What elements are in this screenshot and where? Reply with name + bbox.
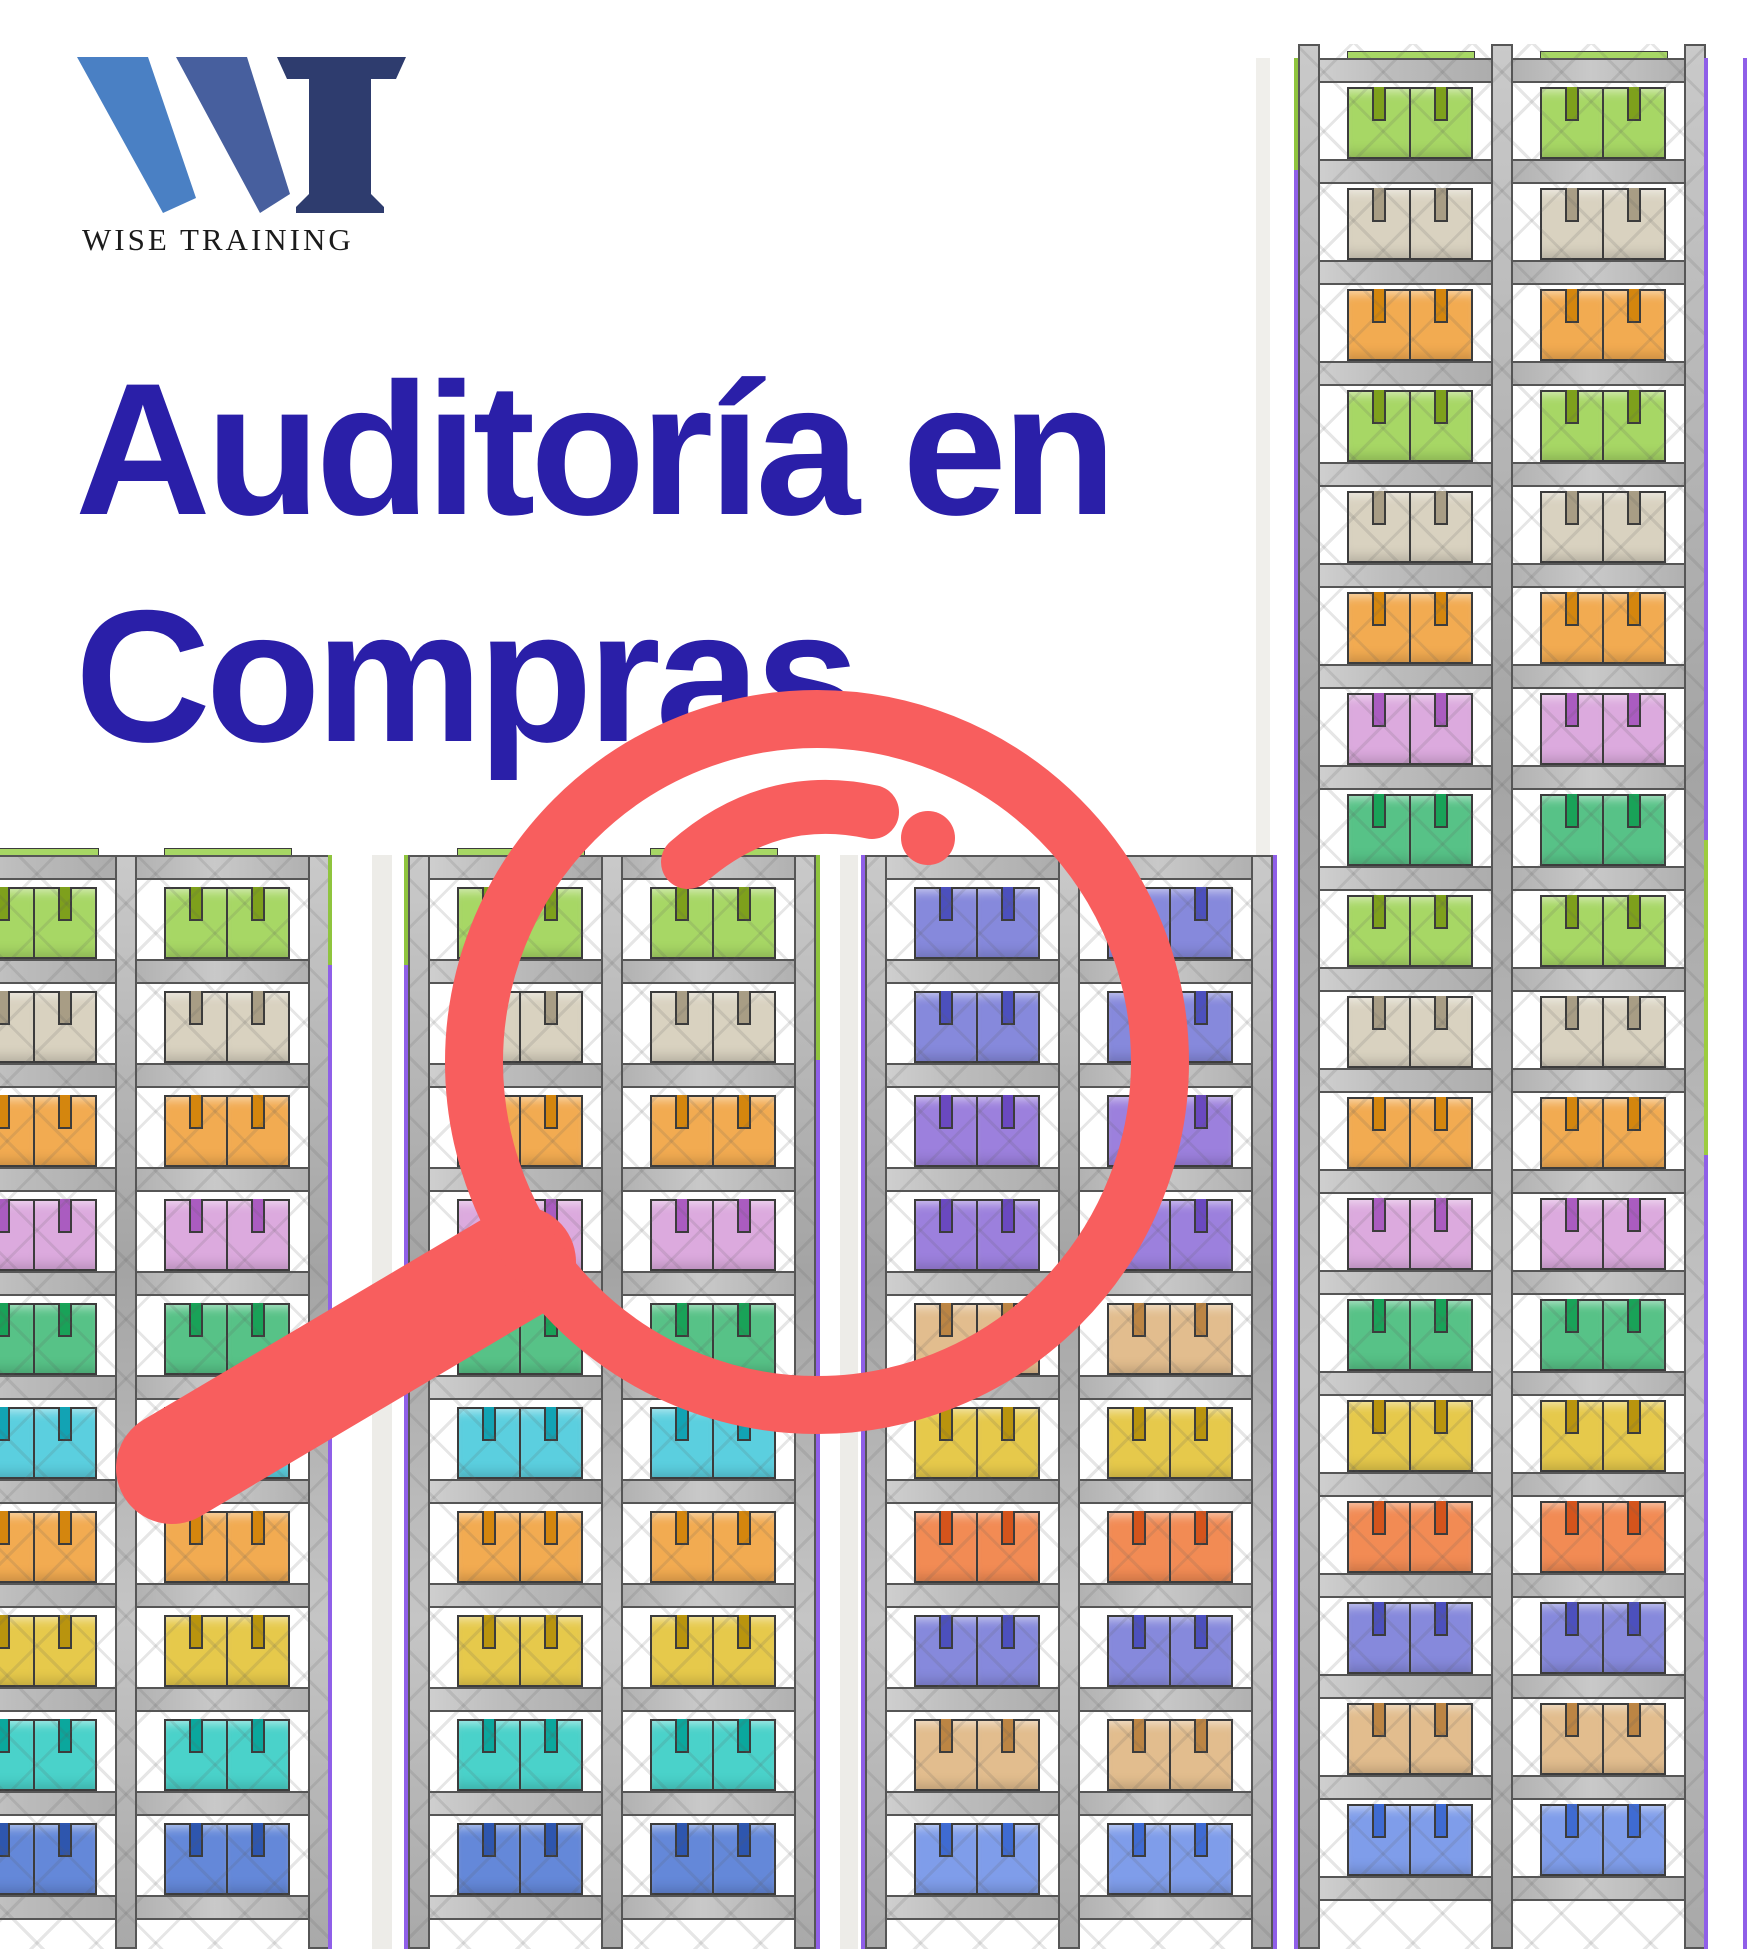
storage-box (1347, 188, 1411, 260)
storage-box (1107, 1303, 1171, 1375)
box-tape-strap (189, 1199, 203, 1233)
box-tape-strap (1372, 491, 1386, 525)
box-tape-strap (675, 1407, 689, 1441)
storage-box (712, 1511, 776, 1583)
storage-box (1602, 1804, 1666, 1876)
box-tape-strap (1372, 592, 1386, 626)
box-tape-strap (482, 1719, 496, 1753)
box-tape-strap (482, 1615, 496, 1649)
box-pair (650, 1719, 776, 1791)
box-tape-strap (58, 1719, 72, 1753)
background-stripe (372, 855, 392, 1949)
box-pair (1347, 1198, 1473, 1270)
box-pair (650, 887, 776, 959)
storage-box (1540, 693, 1604, 765)
rack-edge-line (404, 855, 408, 965)
box-tape-strap (1627, 390, 1641, 424)
storage-box (976, 1719, 1040, 1791)
box-tape-strap (1434, 188, 1448, 222)
box-tape-strap (1132, 1511, 1146, 1545)
box-pair (1107, 1615, 1233, 1687)
storage-box (164, 1615, 228, 1687)
storage-box (164, 1719, 228, 1791)
box-tape-strap (675, 1511, 689, 1545)
storage-box (1540, 491, 1604, 563)
box-tape-strap (1627, 1299, 1641, 1333)
box-tape-strap (544, 1511, 558, 1545)
box-tape-strap (1372, 1804, 1386, 1838)
storage-box (1540, 289, 1604, 361)
storage-box (1107, 1511, 1171, 1583)
box-tape-strap (1372, 289, 1386, 323)
box-tape-strap (58, 991, 72, 1025)
storage-box (33, 1407, 97, 1479)
box-pair (1540, 1703, 1666, 1775)
storage-box (914, 1407, 978, 1479)
box-tape-strap (1627, 1198, 1641, 1232)
shelf-post (794, 855, 816, 1949)
box-tape-strap (1194, 1615, 1208, 1649)
shelf-rack (865, 855, 1273, 1949)
rack-edge-line (861, 855, 865, 1949)
storage-box (1347, 996, 1411, 1068)
box-pair (1347, 188, 1473, 260)
storage-box (33, 887, 97, 959)
box-tape-strap (939, 1823, 953, 1857)
shelf-post (115, 855, 137, 1949)
storage-box (1107, 1407, 1171, 1479)
box-pair (164, 1511, 290, 1583)
storage-box (519, 1511, 583, 1583)
box-tape-strap (1565, 491, 1579, 525)
box-pair (457, 1407, 583, 1479)
box-tape-strap (1194, 1303, 1208, 1337)
box-tape-strap (675, 1823, 689, 1857)
box-tape-strap (1001, 1719, 1015, 1753)
box-tape-strap (1565, 1804, 1579, 1838)
logo-t-bar (277, 57, 406, 79)
box-pair (1540, 1804, 1666, 1876)
storage-box (1409, 1501, 1473, 1573)
box-tape-strap (251, 1303, 265, 1337)
cut-box-row (1347, 51, 1475, 58)
box-tape-strap (482, 1407, 496, 1441)
shelf-post (1251, 855, 1273, 1949)
storage-box (0, 1095, 35, 1167)
box-tape-strap (1627, 794, 1641, 828)
box-tape-strap (1372, 794, 1386, 828)
storage-box (914, 1615, 978, 1687)
storage-box (226, 1199, 290, 1271)
storage-box (712, 1719, 776, 1791)
box-tape-strap (189, 887, 203, 921)
storage-box (914, 1095, 978, 1167)
box-tape-strap (251, 1615, 265, 1649)
box-pair (1347, 693, 1473, 765)
box-pair (1540, 693, 1666, 765)
box-tape-strap (189, 1719, 203, 1753)
box-pair (457, 1719, 583, 1791)
box-tape-strap (1132, 887, 1146, 921)
storage-box (1347, 794, 1411, 866)
box-pair (0, 1303, 97, 1375)
box-tape-strap (675, 1095, 689, 1129)
box-tape-strap (189, 1823, 203, 1857)
shelf-bar (0, 855, 330, 880)
box-pair (914, 1823, 1040, 1895)
box-tape-strap (737, 1719, 751, 1753)
box-pair (1540, 895, 1666, 967)
box-tape-strap (482, 1511, 496, 1545)
box-tape-strap (939, 1615, 953, 1649)
storage-box (650, 1615, 714, 1687)
box-pair (1540, 1400, 1666, 1472)
storage-box (1347, 1097, 1411, 1169)
box-pair (457, 991, 583, 1063)
box-tape-strap (675, 887, 689, 921)
box-tape-strap (251, 1719, 265, 1753)
storage-box (650, 1303, 714, 1375)
storage-box (1409, 794, 1473, 866)
box-pair (914, 1407, 1040, 1479)
storage-box (1169, 1095, 1233, 1167)
box-tape-strap (1132, 1199, 1146, 1233)
box-pair (1347, 491, 1473, 563)
storage-box (1602, 1602, 1666, 1674)
storage-box (1602, 895, 1666, 967)
storage-box (0, 1615, 35, 1687)
box-tape-strap (1372, 1097, 1386, 1131)
box-pair (164, 991, 290, 1063)
box-tape-strap (1001, 887, 1015, 921)
box-tape-strap (251, 991, 265, 1025)
rack-edge-line (1743, 58, 1747, 1949)
box-pair (914, 1511, 1040, 1583)
brand-name: WISE TRAINING (82, 222, 354, 258)
box-tape-strap (482, 1303, 496, 1337)
storage-box (1107, 1615, 1171, 1687)
box-tape-strap (939, 887, 953, 921)
box-tape-strap (1565, 592, 1579, 626)
box-tape-strap (1194, 1407, 1208, 1441)
storage-box (914, 991, 978, 1063)
storage-box (457, 1719, 521, 1791)
logo-t-stem (296, 79, 384, 213)
box-tape-strap (1627, 1703, 1641, 1737)
box-tape-strap (1434, 1602, 1448, 1636)
box-tape-strap (58, 1823, 72, 1857)
storage-box (164, 1511, 228, 1583)
box-tape-strap (1372, 1602, 1386, 1636)
box-pair (0, 887, 97, 959)
box-tape-strap (544, 887, 558, 921)
box-tape-strap (1434, 996, 1448, 1030)
storage-box (712, 1407, 776, 1479)
shelf-bar (0, 1271, 330, 1296)
box-tape-strap (251, 1511, 265, 1545)
box-tape-strap (1434, 1299, 1448, 1333)
box-tape-strap (1001, 1511, 1015, 1545)
box-pair (650, 991, 776, 1063)
storage-box (519, 991, 583, 1063)
box-pair (1347, 289, 1473, 361)
box-pair (0, 1615, 97, 1687)
rack-edge-line (1294, 170, 1298, 1949)
storage-box (976, 1095, 1040, 1167)
storage-box (1347, 390, 1411, 462)
storage-box (914, 1199, 978, 1271)
box-tape-strap (1434, 491, 1448, 525)
box-pair (1347, 1501, 1473, 1573)
box-tape-strap (1194, 1095, 1208, 1129)
storage-box (1169, 1615, 1233, 1687)
box-pair (914, 1615, 1040, 1687)
box-pair (164, 1615, 290, 1687)
box-pair (457, 887, 583, 959)
box-tape-strap (1627, 188, 1641, 222)
storage-box (457, 1407, 521, 1479)
storage-box (712, 1095, 776, 1167)
box-tape-strap (1001, 1407, 1015, 1441)
storage-box (519, 1407, 583, 1479)
box-tape-strap (737, 1407, 751, 1441)
storage-box (1602, 1703, 1666, 1775)
box-tape-strap (1627, 895, 1641, 929)
storage-box (0, 887, 35, 959)
box-tape-strap (1001, 991, 1015, 1025)
box-tape-strap (1194, 1511, 1208, 1545)
box-tape-strap (1001, 1199, 1015, 1233)
box-tape-strap (1627, 996, 1641, 1030)
storage-box (650, 887, 714, 959)
shelf-post (1684, 44, 1706, 1949)
storage-box (650, 991, 714, 1063)
warehouse-illustration (0, 0, 1748, 1949)
storage-box (1602, 491, 1666, 563)
box-pair (1107, 1823, 1233, 1895)
box-tape-strap (1194, 1823, 1208, 1857)
box-tape-strap (737, 887, 751, 921)
box-tape-strap (1627, 491, 1641, 525)
storage-box (1409, 1703, 1473, 1775)
box-pair (1347, 1097, 1473, 1169)
box-pair (1107, 1199, 1233, 1271)
box-tape-strap (1372, 188, 1386, 222)
storage-box (164, 1303, 228, 1375)
storage-box (1347, 693, 1411, 765)
box-pair (164, 1199, 290, 1271)
storage-box (457, 991, 521, 1063)
storage-box (1169, 991, 1233, 1063)
box-tape-strap (58, 1511, 72, 1545)
box-pair (457, 1095, 583, 1167)
storage-box (1169, 1823, 1233, 1895)
rack-edge-line (1704, 58, 1708, 840)
box-pair (1540, 1501, 1666, 1573)
box-pair (1540, 794, 1666, 866)
shelf-rack (0, 855, 330, 1949)
storage-box (0, 1407, 35, 1479)
box-tape-strap (1627, 289, 1641, 323)
storage-box (1169, 1199, 1233, 1271)
box-tape-strap (737, 1199, 751, 1233)
box-pair (1347, 794, 1473, 866)
box-tape-strap (737, 1303, 751, 1337)
box-tape-strap (675, 1615, 689, 1649)
box-pair (457, 1823, 583, 1895)
box-tape-strap (482, 1095, 496, 1129)
storage-box (1540, 1703, 1604, 1775)
storage-box (457, 1095, 521, 1167)
box-tape-strap (544, 1303, 558, 1337)
box-tape-strap (1627, 1804, 1641, 1838)
box-tape-strap (1565, 1703, 1579, 1737)
storage-box (226, 1511, 290, 1583)
box-tape-strap (1627, 693, 1641, 727)
box-tape-strap (675, 1199, 689, 1233)
storage-box (1169, 1511, 1233, 1583)
box-tape-strap (482, 991, 496, 1025)
storage-box (712, 1823, 776, 1895)
storage-box (1540, 794, 1604, 866)
box-tape-strap (1565, 188, 1579, 222)
box-tape-strap (1001, 1615, 1015, 1649)
box-tape-strap (1565, 1097, 1579, 1131)
box-tape-strap (1132, 1095, 1146, 1129)
storage-box (1409, 1299, 1473, 1371)
storage-box (1347, 87, 1411, 159)
box-pair (164, 1823, 290, 1895)
box-tape-strap (675, 991, 689, 1025)
box-tape-strap (1194, 1199, 1208, 1233)
box-tape-strap (1132, 1615, 1146, 1649)
box-pair (164, 887, 290, 959)
box-pair (1107, 991, 1233, 1063)
shelf-bar (0, 1063, 330, 1088)
storage-box (1169, 1719, 1233, 1791)
shelf-post (408, 855, 430, 1949)
storage-box (650, 1095, 714, 1167)
box-tape-strap (939, 1719, 953, 1753)
box-pair (1540, 390, 1666, 462)
storage-box (164, 991, 228, 1063)
shelf-bar (0, 959, 330, 984)
box-tape-strap (1434, 592, 1448, 626)
box-tape-strap (1565, 1602, 1579, 1636)
box-tape-strap (737, 1095, 751, 1129)
box-pair (1540, 188, 1666, 260)
cut-box-row (650, 848, 778, 855)
storage-box (976, 1199, 1040, 1271)
storage-box (1602, 1097, 1666, 1169)
storage-box (519, 1823, 583, 1895)
storage-box (1602, 1400, 1666, 1472)
storage-box (1602, 693, 1666, 765)
box-tape-strap (1627, 1501, 1641, 1535)
storage-box (1347, 1198, 1411, 1270)
box-tape-strap (1627, 1602, 1641, 1636)
storage-box (0, 1823, 35, 1895)
storage-box (976, 1511, 1040, 1583)
box-tape-strap (1132, 991, 1146, 1025)
box-pair (0, 991, 97, 1063)
box-tape-strap (1565, 996, 1579, 1030)
shelf-bar (0, 1583, 330, 1608)
storage-box (1107, 1199, 1171, 1271)
rack-edge-line (1273, 855, 1277, 1949)
storage-box (976, 1615, 1040, 1687)
box-tape-strap (1434, 794, 1448, 828)
box-tape-strap (0, 1303, 10, 1337)
box-tape-strap (251, 1823, 265, 1857)
box-tape-strap (737, 1615, 751, 1649)
box-tape-strap (1565, 693, 1579, 727)
box-pair (650, 1511, 776, 1583)
box-pair (1540, 1299, 1666, 1371)
box-tape-strap (1194, 1719, 1208, 1753)
page-title: Auditoría en Compras (75, 336, 1112, 790)
storage-box (519, 887, 583, 959)
rack-edge-line (328, 855, 332, 965)
box-tape-strap (1434, 1400, 1448, 1434)
storage-box (1169, 1407, 1233, 1479)
box-pair (1107, 1303, 1233, 1375)
storage-box (1409, 1400, 1473, 1472)
storage-box (914, 887, 978, 959)
box-tape-strap (544, 1615, 558, 1649)
box-tape-strap (1627, 1400, 1641, 1434)
box-pair (914, 887, 1040, 959)
box-tape-strap (1372, 1501, 1386, 1535)
box-tape-strap (1372, 87, 1386, 121)
box-tape-strap (1132, 1719, 1146, 1753)
box-tape-strap (939, 1511, 953, 1545)
storage-box (976, 1407, 1040, 1479)
storage-box (457, 1303, 521, 1375)
box-tape-strap (544, 1095, 558, 1129)
box-tape-strap (189, 991, 203, 1025)
box-pair (650, 1199, 776, 1271)
shelf-post (1491, 44, 1513, 1949)
box-tape-strap (544, 1719, 558, 1753)
storage-box (0, 991, 35, 1063)
box-pair (1347, 996, 1473, 1068)
storage-box (1540, 1400, 1604, 1472)
storage-box (1409, 693, 1473, 765)
storage-box (1540, 1602, 1604, 1674)
storage-box (1347, 1501, 1411, 1573)
box-tape-strap (1434, 693, 1448, 727)
box-tape-strap (58, 1303, 72, 1337)
box-tape-strap (58, 887, 72, 921)
storage-box (1347, 1703, 1411, 1775)
storage-box (1409, 1602, 1473, 1674)
box-tape-strap (251, 1095, 265, 1129)
box-tape-strap (1372, 1400, 1386, 1434)
rack-edge-line (1294, 58, 1298, 170)
storage-box (650, 1511, 714, 1583)
box-pair (0, 1199, 97, 1271)
storage-box (33, 1095, 97, 1167)
box-pair (1347, 895, 1473, 967)
box-pair (1347, 592, 1473, 664)
box-tape-strap (1627, 87, 1641, 121)
box-tape-strap (1565, 289, 1579, 323)
storage-box (650, 1407, 714, 1479)
box-tape-strap (675, 1719, 689, 1753)
box-pair (164, 1303, 290, 1375)
storage-box (1409, 1097, 1473, 1169)
